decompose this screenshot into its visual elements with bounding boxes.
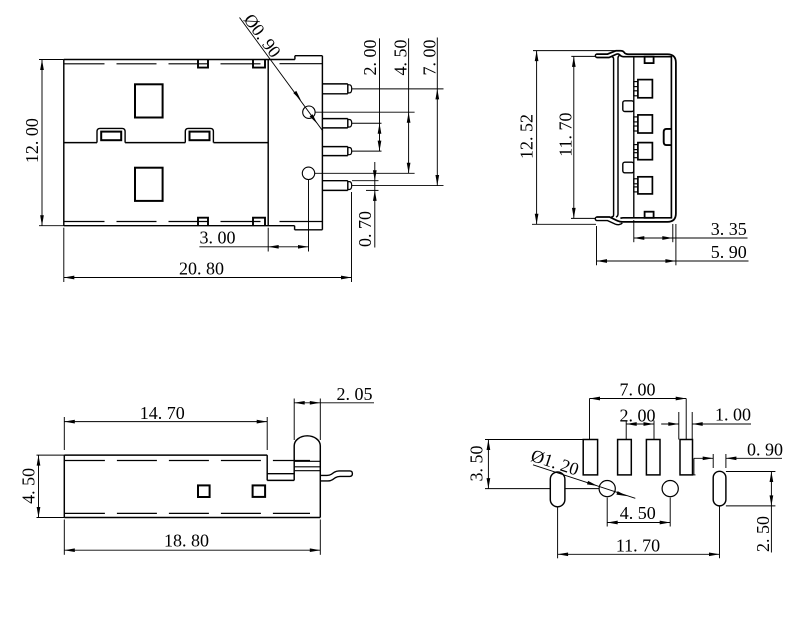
svg-text:2. 50: 2. 50 [753,516,773,552]
svg-text:3. 35: 3. 35 [711,219,747,239]
svg-text:1. 00: 1. 00 [715,404,751,424]
svg-text:0. 90: 0. 90 [747,440,783,460]
svg-text:20. 80: 20. 80 [179,259,224,279]
svg-text:14. 70: 14. 70 [140,403,185,423]
svg-text:2. 00: 2. 00 [360,40,380,76]
svg-text:0. 70: 0. 70 [355,211,375,247]
svg-text:11. 70: 11. 70 [616,535,660,555]
svg-text:3. 50: 3. 50 [467,446,487,482]
svg-text:5. 90: 5. 90 [711,242,747,262]
svg-text:7. 00: 7. 00 [420,40,440,76]
svg-text:4. 50: 4. 50 [18,468,38,504]
svg-text:2. 00: 2. 00 [620,405,656,425]
svg-text:4. 50: 4. 50 [391,40,411,76]
svg-text:7. 00: 7. 00 [620,380,656,400]
svg-text:12. 00: 12. 00 [22,118,42,163]
svg-text:12. 52: 12. 52 [517,114,537,159]
svg-text:3. 00: 3. 00 [200,228,236,248]
svg-text:2. 05: 2. 05 [337,384,373,404]
svg-text:11. 70: 11. 70 [556,112,576,156]
svg-text:4. 50: 4. 50 [620,503,656,523]
svg-text:18. 80: 18. 80 [164,531,209,551]
